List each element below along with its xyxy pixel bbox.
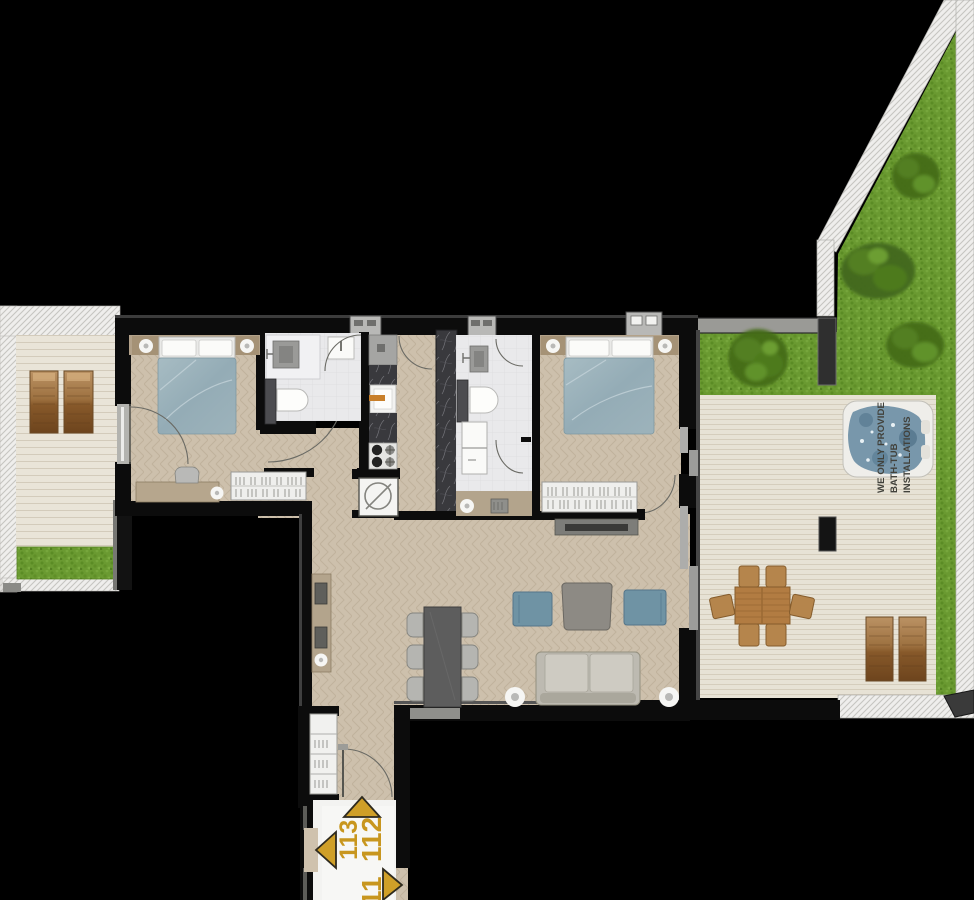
svg-text:112: 112	[356, 817, 387, 862]
